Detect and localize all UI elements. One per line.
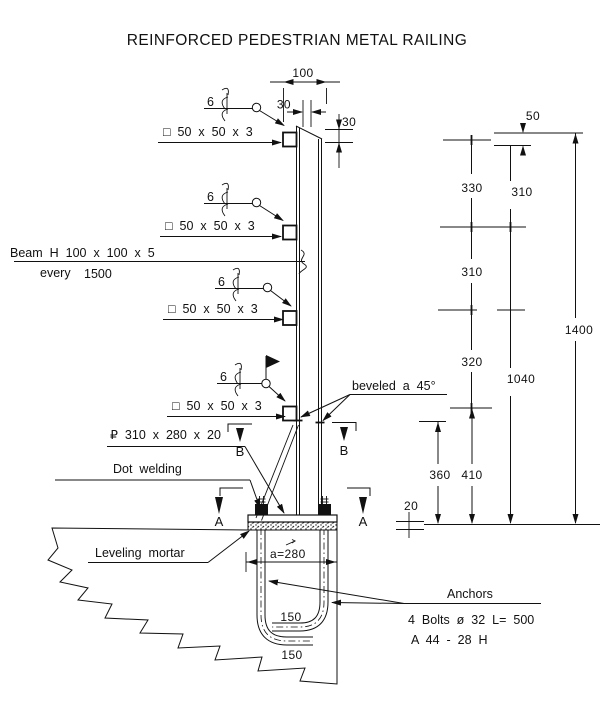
- dot-welding-callout: Dot welding: [55, 462, 260, 508]
- weld-symbol-icon: [235, 363, 241, 396]
- beam-every-label: every: [40, 266, 71, 280]
- dimension-top-width: 100: [270, 66, 340, 122]
- section-marker-a-left: A: [215, 488, 243, 529]
- section-b-letter: B: [236, 444, 245, 459]
- rail-callout-2: □ 50 x 50 x 3: [160, 219, 281, 237]
- weld-symbol-icon: [222, 183, 228, 216]
- weld-symbol-group-3: 6: [215, 268, 291, 306]
- leveling-mortar-band: [248, 522, 337, 530]
- dim-mortar-value: 20: [404, 499, 418, 513]
- base-plate: [248, 515, 337, 522]
- drawing-title: REINFORCED PEDESTRIAN METAL RAILING: [127, 32, 467, 49]
- section-marker-a-right: A: [347, 488, 370, 529]
- drawing-sheet: 100 30 30 330 310: [0, 0, 602, 713]
- field-weld-flag-icon: [266, 355, 280, 379]
- dim-base-to-rail-value: 410: [461, 468, 482, 482]
- section-a-letter: A: [359, 514, 368, 529]
- rail-tube-sections: [283, 133, 297, 421]
- bolt-nut-right: [318, 496, 331, 515]
- beam-label: Beam H 100 x 100 x 5: [10, 246, 155, 260]
- dot-welding-label: Dot welding: [113, 462, 182, 476]
- dim-total-value: 1400: [565, 323, 593, 337]
- weld-size-label: 6: [220, 370, 227, 384]
- bolts-spec-label: 4 Bolts ø 32 L= 500: [408, 613, 534, 627]
- bolts-ref-label: A 44 - 28 H: [411, 633, 488, 647]
- dim-bolt-spacing-value: a=280: [270, 547, 306, 561]
- dim-lower-value: 1040: [507, 372, 535, 386]
- weld-symbol-icon: [222, 88, 228, 121]
- dim-upper-value: 310: [511, 185, 532, 199]
- rail-section-label: □ 50 x 50 x 3: [172, 399, 262, 413]
- beam-callout: Beam H 100 x 100 x 5 every 1500: [10, 246, 306, 281]
- rail-section-label: □ 50 x 50 x 3: [163, 125, 253, 139]
- section-a-letter: A: [215, 514, 224, 529]
- dim-top-width-value: 100: [292, 66, 313, 80]
- rail-section-label: □ 50 x 50 x 3: [165, 219, 255, 233]
- dimension-mortar-thickness: 20: [396, 499, 424, 538]
- dim-gap2-value: 310: [461, 265, 482, 279]
- dim-hat-arrow: [286, 540, 295, 546]
- weld-size-label: 6: [207, 190, 214, 204]
- weld-symbol-group-2: 6: [204, 183, 283, 220]
- leveling-mortar-callout: Leveling mortar: [88, 531, 249, 563]
- rail-callout-1: □ 50 x 50 x 3: [158, 125, 281, 143]
- dimension-chains-right: 330 310 320 50 310 1040 1400 410 360: [396, 109, 600, 538]
- plate-label: ₽ 310 x 280 x 20: [110, 428, 221, 442]
- leveling-mortar-label: Leveling mortar: [95, 546, 185, 560]
- weld-symbol-group-4: 6: [217, 355, 285, 401]
- rail-callout-4: □ 50 x 50 x 3: [167, 399, 285, 417]
- dim-rail-offset-value: 30: [277, 98, 291, 112]
- section-marker-b-right: B: [332, 423, 356, 459]
- dim-hook1-value: 150: [280, 610, 301, 624]
- rail-callout-3: □ 50 x 50 x 3: [163, 302, 283, 320]
- dim-cap-bevel-value: 30: [342, 115, 356, 129]
- post-h-beam: [294, 126, 325, 515]
- dim-gap1-value: 330: [461, 181, 482, 195]
- dim-embed-clear-value: 360: [429, 468, 450, 482]
- dim-hook2-value: 150: [281, 648, 302, 662]
- weld-size-label: 6: [207, 95, 214, 109]
- weld-symbol-group-1: 6: [204, 88, 284, 125]
- dimension-cap-bevel: 30: [325, 114, 356, 168]
- section-marker-b-left: B: [228, 424, 252, 459]
- beam-spacing-value: 1500: [84, 267, 112, 281]
- section-b-letter: B: [340, 443, 349, 458]
- dim-gap3-value: 320: [461, 355, 482, 369]
- rail-section-label: □ 50 x 50 x 3: [168, 302, 258, 316]
- weld-size-label: 6: [218, 275, 225, 289]
- weld-symbol-icon: [233, 268, 239, 301]
- anchors-label: Anchors: [447, 587, 493, 601]
- dimension-rail-offset: 30: [277, 98, 326, 128]
- beveled-label: beveled a 45°: [352, 379, 436, 393]
- dim-cap-value: 50: [526, 109, 540, 123]
- railing-detail-drawing: 100 30 30 330 310: [0, 0, 602, 713]
